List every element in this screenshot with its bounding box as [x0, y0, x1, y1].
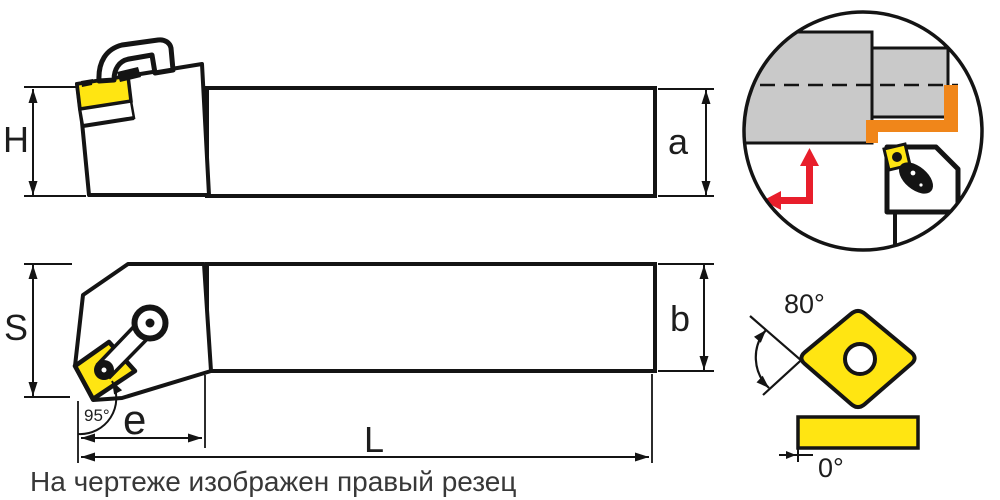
label-S: S — [4, 307, 28, 348]
caption: На чертеже изображен правый резец — [30, 466, 516, 497]
workpiece-large-step — [728, 32, 872, 143]
insert-detail: 80° 0° — [750, 289, 918, 483]
label-H: H — [3, 119, 29, 160]
insert-side-view — [798, 417, 918, 448]
insert-hole — [845, 344, 875, 374]
arc-arrow-bottom — [757, 376, 770, 388]
label-a: a — [668, 121, 689, 162]
arc-arrow-top — [754, 330, 766, 343]
label-b: b — [670, 298, 690, 339]
side-shank — [207, 88, 655, 196]
top-shank — [207, 264, 655, 371]
clamp-screw-center — [102, 368, 107, 373]
label-95: 95° — [84, 406, 110, 425]
drawing-canvas: H a 95° — [0, 0, 1000, 500]
label-0: 0° — [818, 453, 844, 483]
label-e: e — [123, 396, 146, 443]
application-inset — [728, 12, 982, 252]
label-80: 80° — [784, 289, 825, 319]
dimension-S — [24, 264, 72, 397]
label-L: L — [364, 419, 384, 460]
angle-0-annotation — [779, 448, 813, 462]
workpiece-small-step — [872, 48, 948, 117]
dimension-H — [24, 87, 86, 196]
clamp-pivot-center — [146, 319, 155, 328]
top-view: 95° e L S — [4, 264, 714, 463]
side-view: H a — [3, 40, 714, 196]
feed-arrows — [763, 148, 819, 210]
technical-drawing-page: H a 95° — [0, 0, 1000, 500]
